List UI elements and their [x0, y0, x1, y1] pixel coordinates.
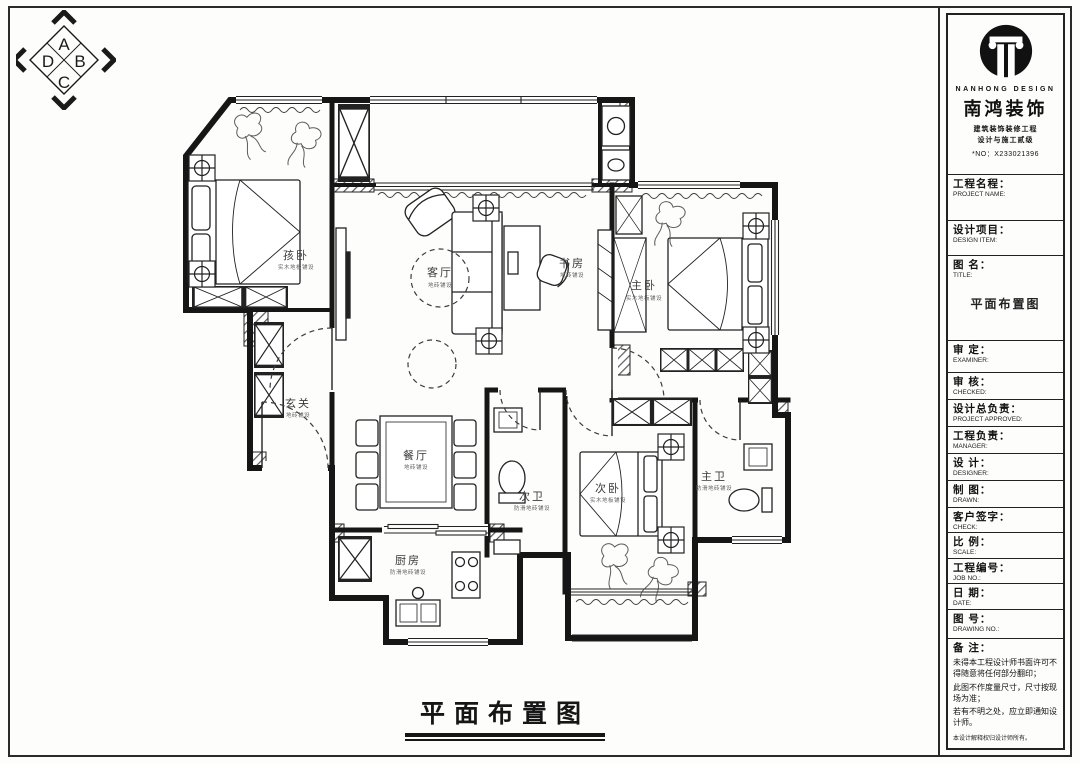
field-drawn: 制 图： DRAWN: [948, 481, 1063, 508]
brand-name-cn: 南鸿装饰 [964, 95, 1048, 121]
sheet-border [8, 6, 1072, 757]
title-block: NANHONG DESIGN 南鸿装饰 建筑装饰装修工程 设计与施工贰级 *NO… [946, 13, 1065, 750]
field-designer: 设 计： DESIGNER: [948, 454, 1063, 481]
field-design-item: 设计项目： DESIGN ITEM: [948, 221, 1063, 256]
field-drawing-name: 图 名： TITLE: 平面布置图 [948, 256, 1063, 341]
note-line-3: 若有不明之处，应立即通知设计师。 [953, 706, 1058, 728]
field-project-approved: 设计总负责： PROJECT APPROVED: [948, 400, 1063, 427]
field-drawing-no: 图 号： DRAWING NO.: [948, 610, 1063, 639]
brand-cert-2: 设计与施工贰级 [978, 135, 1034, 145]
field-project-name: 工程名程： PROJECT NAME: [948, 175, 1063, 221]
brand-cert-1: 建筑装饰装修工程 [974, 124, 1038, 134]
note-copyright: 本设计解释权归设计师所有。 [953, 733, 1058, 742]
brand-name-en: NANHONG DESIGN [956, 86, 1056, 93]
brand-license-no: *NO：X233021396 [972, 149, 1039, 159]
field-scale: 比 例： SCALE: [948, 533, 1063, 559]
field-job-no: 工程编号： JOB NO.: [948, 559, 1063, 584]
drawing-sheet: 孩卧 实木地板铺设 客厅 地砖铺设 书房 地砖铺设 主卧 实木地板铺设 玄关 地… [0, 0, 1080, 764]
column-logo-icon [977, 23, 1035, 81]
field-checked: 审 核： CHECKED: [948, 373, 1063, 400]
titleblock-divider [938, 6, 940, 757]
field-date: 日 期： DATE: [948, 584, 1063, 610]
field-notes: 备 注： 未得本工程设计师书面许可不得随意将任何部分翻印； 此图不作度量尺寸，尺… [948, 639, 1063, 748]
drawing-name-value: 平面布置图 [953, 295, 1058, 312]
field-manager: 工程负责： MANAGER: [948, 427, 1063, 454]
field-examiner: 审 定： EXAMINER: [948, 341, 1063, 373]
note-line-2: 此图不作度量尺寸，尺寸按现场为准； [953, 682, 1058, 704]
field-client-sign: 客户签字： CHECK: [948, 508, 1063, 533]
brand-block: NANHONG DESIGN 南鸿装饰 建筑装饰装修工程 设计与施工贰级 *NO… [948, 15, 1063, 175]
note-line-1: 未得本工程设计师书面许可不得随意将任何部分翻印； [953, 657, 1058, 679]
